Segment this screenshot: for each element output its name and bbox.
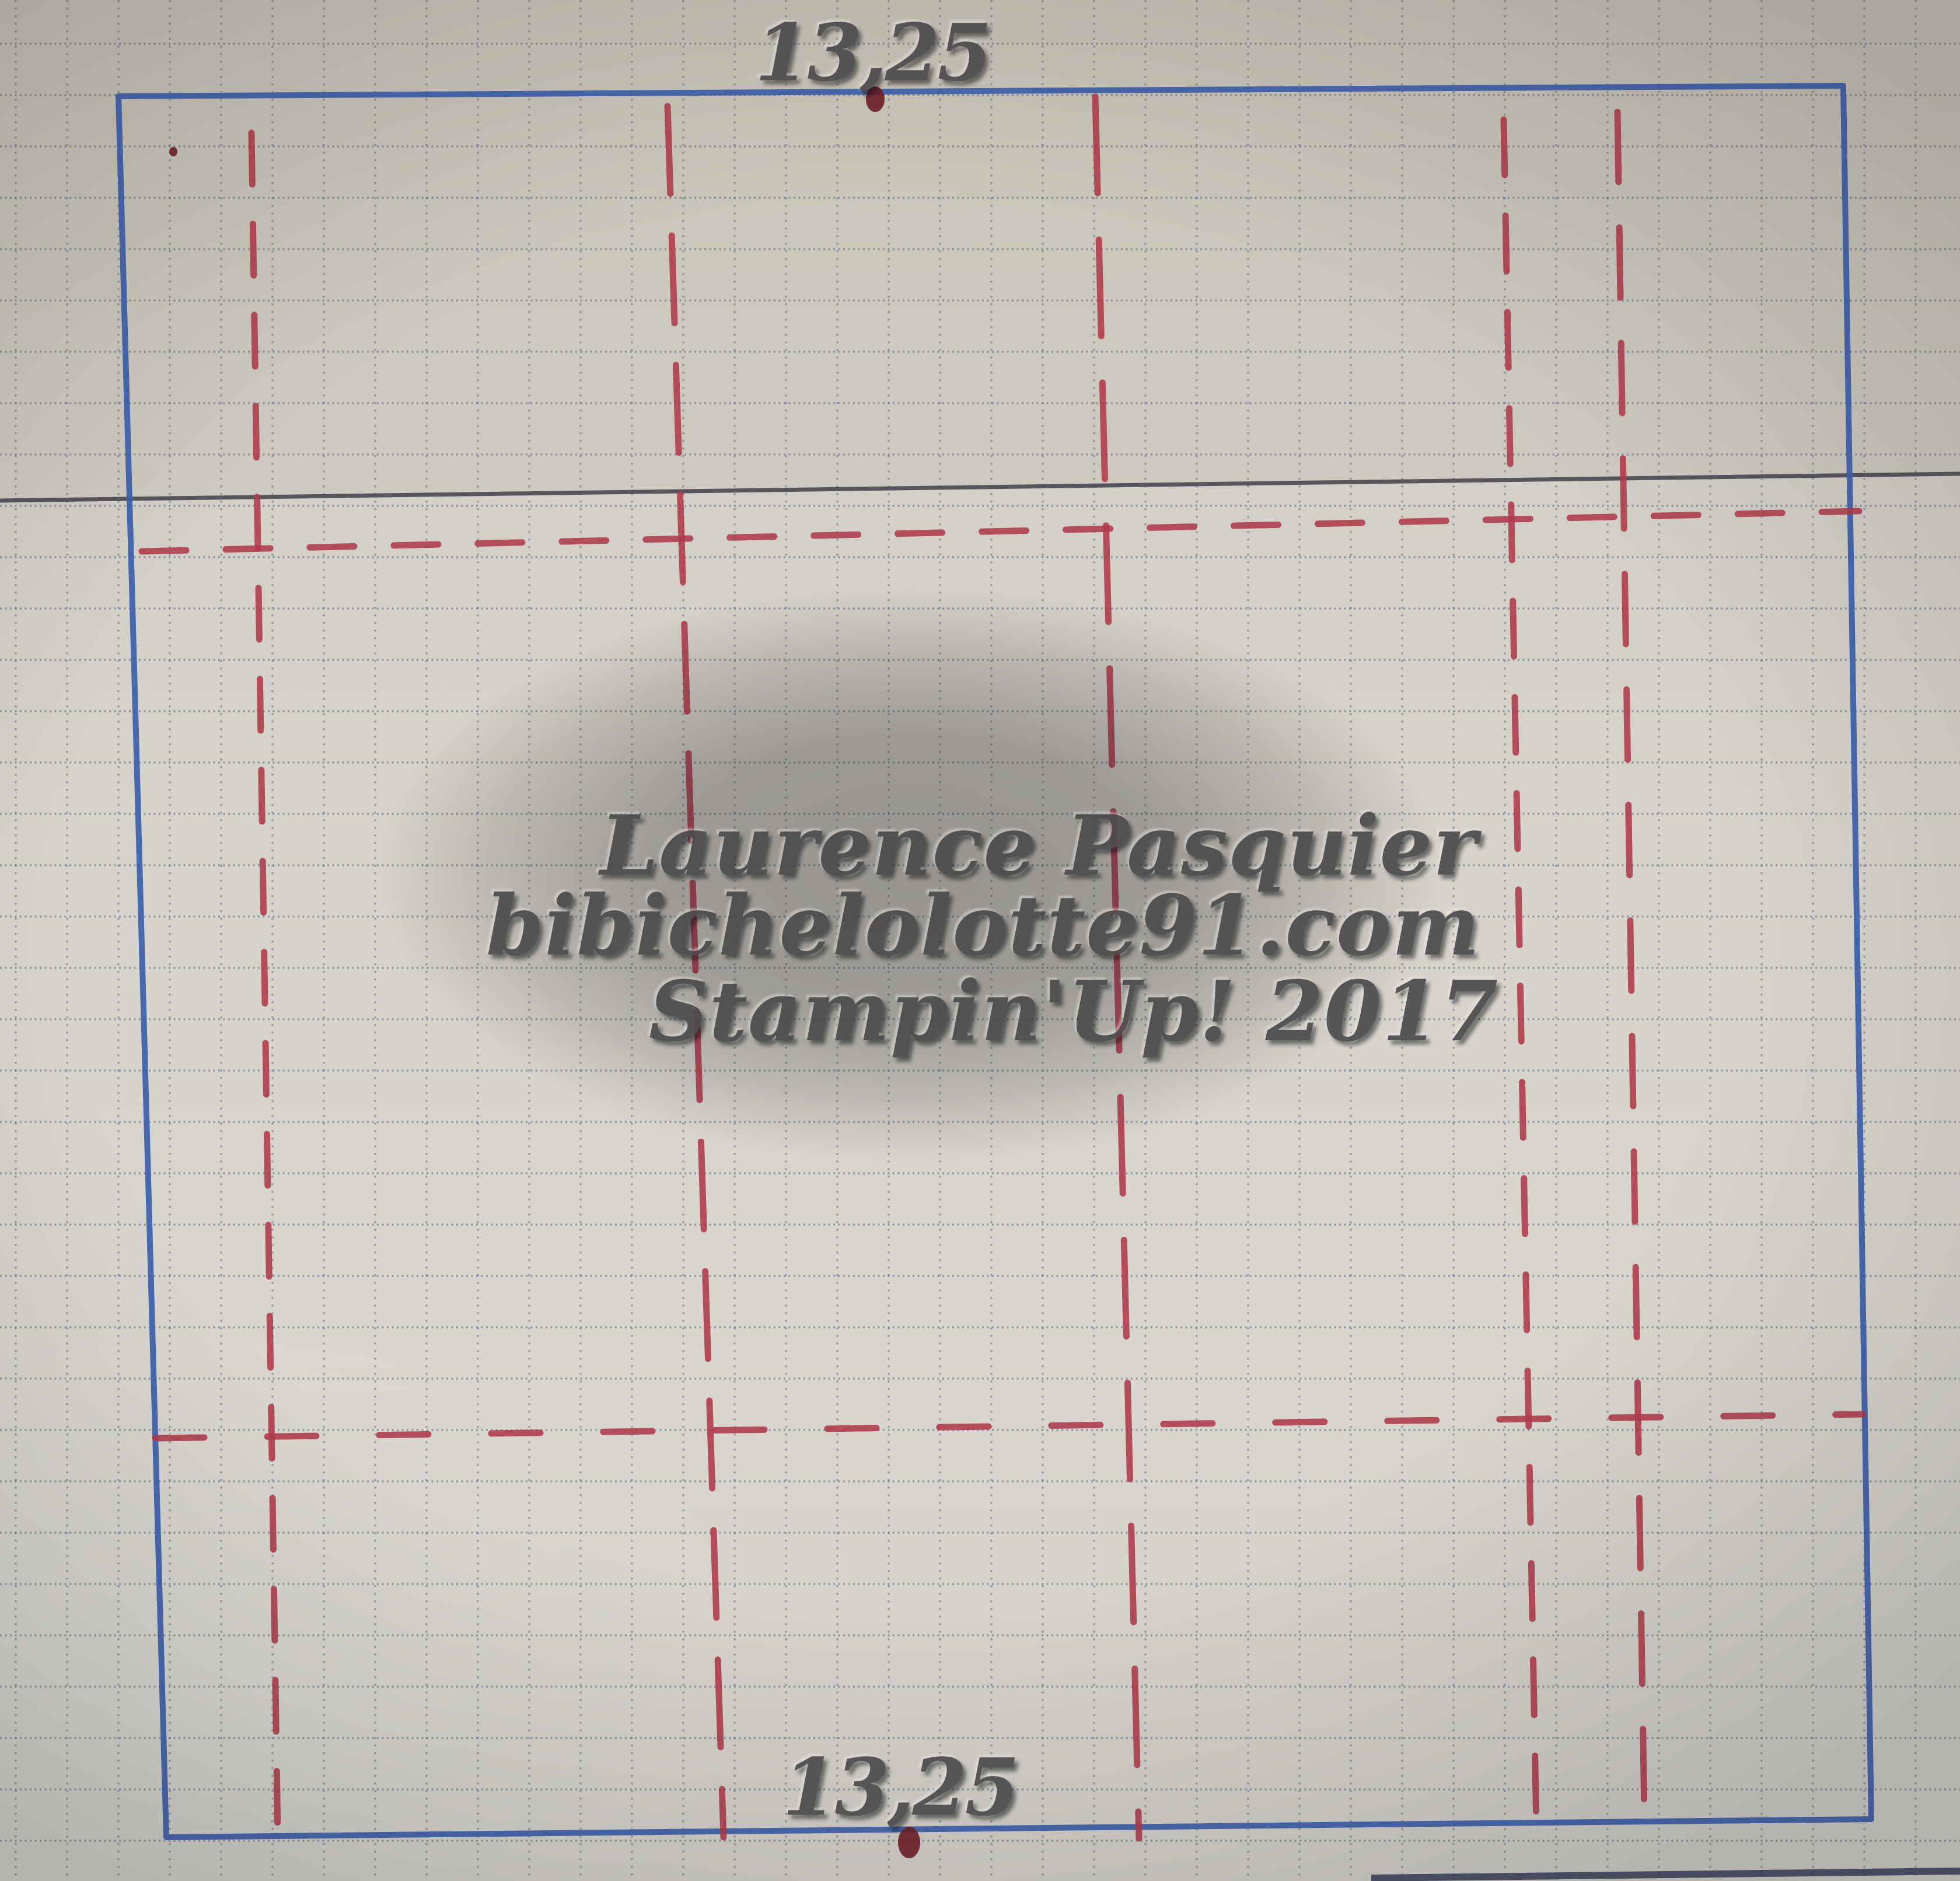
graph-paper-photo: 13,25 13,25 Laurence Pasquier bibichelol… — [0, 0, 1960, 1881]
watermark-website: bibichelolotte91.com — [486, 877, 1480, 974]
top-measurement-label: 13,25 — [755, 6, 990, 99]
bottom-measurement-label: 13,25 — [782, 1741, 1018, 1834]
watermark-brand-year: Stampin'Up! 2017 — [649, 963, 1498, 1060]
